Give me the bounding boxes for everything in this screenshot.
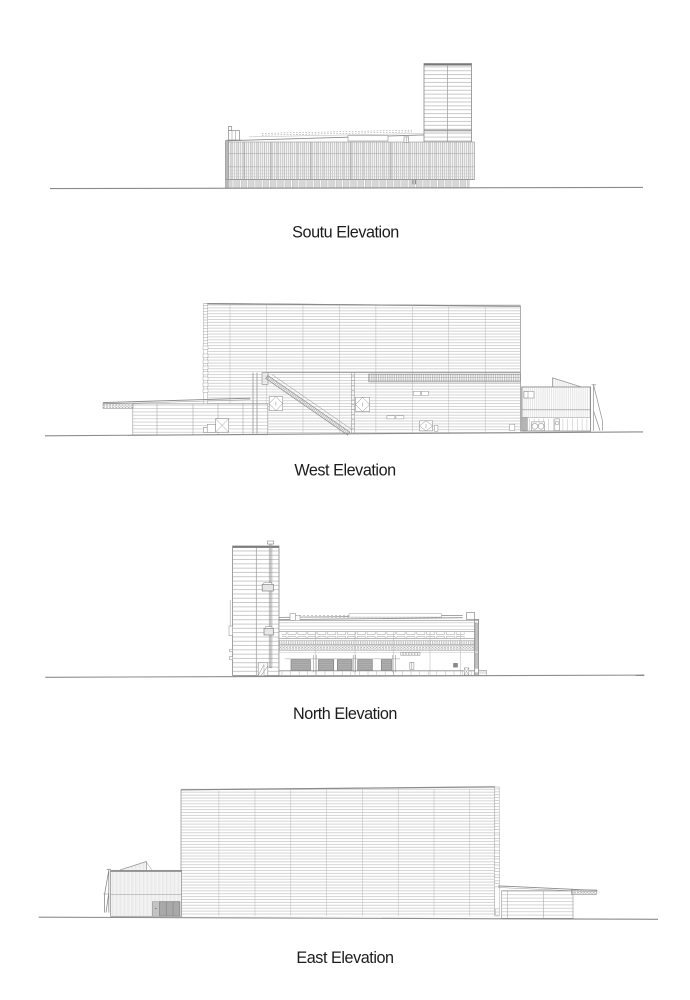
svg-text:Soutu Elevation: Soutu Elevation [292,223,399,241]
svg-text:West Elevation: West Elevation [294,461,395,479]
svg-text:East Elevation: East Elevation [296,949,393,967]
svg-text:North Elevation: North Elevation [293,705,397,723]
